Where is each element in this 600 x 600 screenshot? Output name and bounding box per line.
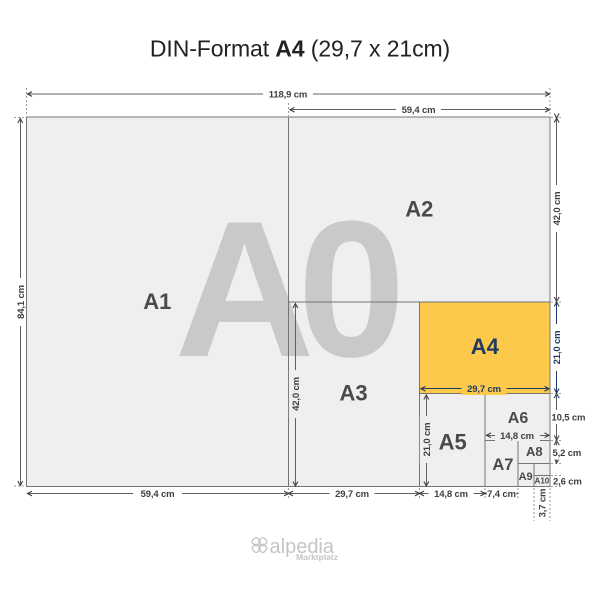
- svg-text:A4: A4: [471, 334, 500, 359]
- svg-text:42,0 cm: 42,0 cm: [291, 377, 302, 411]
- svg-text:A8: A8: [526, 444, 543, 459]
- svg-text:2,6 cm: 2,6 cm: [553, 476, 582, 487]
- svg-text:59,4 cm: 59,4 cm: [141, 489, 175, 500]
- svg-text:3,7 cm: 3,7 cm: [538, 489, 549, 518]
- svg-text:29,7 cm: 29,7 cm: [467, 384, 501, 395]
- svg-text:A5: A5: [439, 430, 467, 455]
- svg-text:84,1 cm: 84,1 cm: [16, 285, 27, 319]
- svg-text:42,0 cm: 42,0 cm: [552, 192, 563, 226]
- svg-text:A3: A3: [339, 381, 367, 406]
- svg-text:14,8 cm: 14,8 cm: [500, 431, 534, 442]
- svg-text:A1: A1: [143, 289, 171, 314]
- svg-text:14,8 cm: 14,8 cm: [434, 489, 468, 500]
- svg-text:21,0 cm: 21,0 cm: [552, 331, 563, 365]
- svg-text:5,2 cm: 5,2 cm: [553, 448, 582, 459]
- svg-text:10,5 cm: 10,5 cm: [552, 413, 586, 424]
- svg-text:A0: A0: [175, 181, 398, 398]
- svg-text:118,9 cm: 118,9 cm: [269, 90, 307, 101]
- svg-text:DIN-Format A4 (29,7 x 21cm): DIN-Format A4 (29,7 x 21cm): [150, 36, 450, 62]
- svg-text:59,4 cm: 59,4 cm: [402, 105, 436, 116]
- svg-text:A2: A2: [405, 197, 433, 222]
- svg-text:29,7 cm: 29,7 cm: [335, 489, 369, 500]
- svg-text:Marktplatz: Marktplatz: [296, 552, 338, 562]
- svg-text:A6: A6: [508, 410, 529, 427]
- svg-text:7,4 cm: 7,4 cm: [487, 489, 516, 500]
- svg-text:A9: A9: [519, 471, 533, 483]
- svg-text:A7: A7: [492, 456, 513, 474]
- svg-text:A10: A10: [535, 477, 550, 486]
- svg-text:21,0 cm: 21,0 cm: [422, 423, 433, 457]
